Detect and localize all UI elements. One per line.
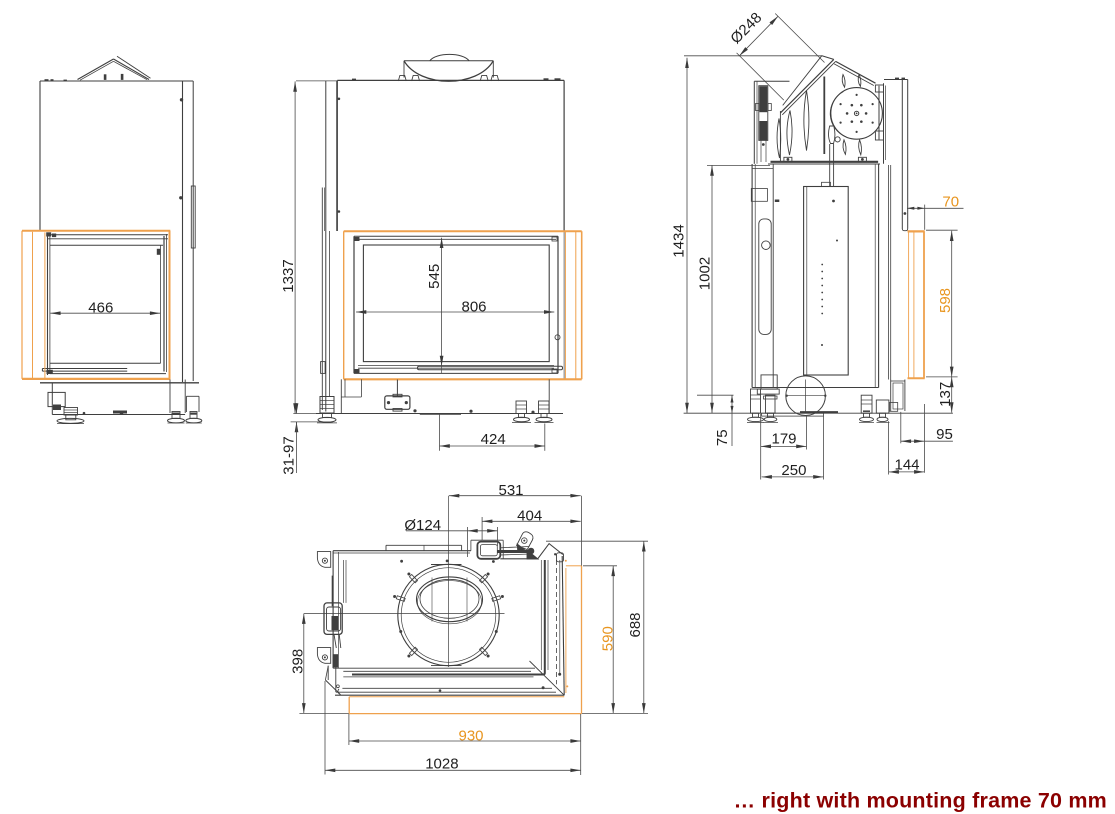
svg-text:545: 545 [426,264,443,289]
svg-text:930: 930 [458,728,483,745]
svg-text:531: 531 [498,482,523,499]
svg-text:398: 398 [289,649,306,674]
svg-text:1337: 1337 [280,259,297,292]
svg-text:75: 75 [714,429,731,446]
svg-text:Ø248: Ø248 [727,9,765,47]
svg-text:137: 137 [937,382,954,407]
svg-text:806: 806 [461,299,486,316]
svg-text:404: 404 [517,508,542,525]
svg-text:1434: 1434 [670,224,687,257]
svg-text:688: 688 [627,612,644,637]
svg-text:70: 70 [942,194,959,211]
svg-text:… right with mounting frame 70: … right with mounting frame 70 mm [734,788,1107,812]
svg-text:179: 179 [771,431,796,448]
svg-text:424: 424 [481,431,506,448]
svg-text:95: 95 [936,426,953,443]
svg-text:598: 598 [937,288,954,313]
svg-text:1028: 1028 [425,756,458,773]
svg-text:31-97: 31-97 [281,436,298,474]
svg-text:1002: 1002 [696,257,713,290]
svg-text:250: 250 [781,462,806,479]
svg-text:466: 466 [88,300,113,317]
svg-text:144: 144 [894,457,919,474]
svg-text:Ø124: Ø124 [404,517,441,534]
svg-text:590: 590 [599,626,616,651]
